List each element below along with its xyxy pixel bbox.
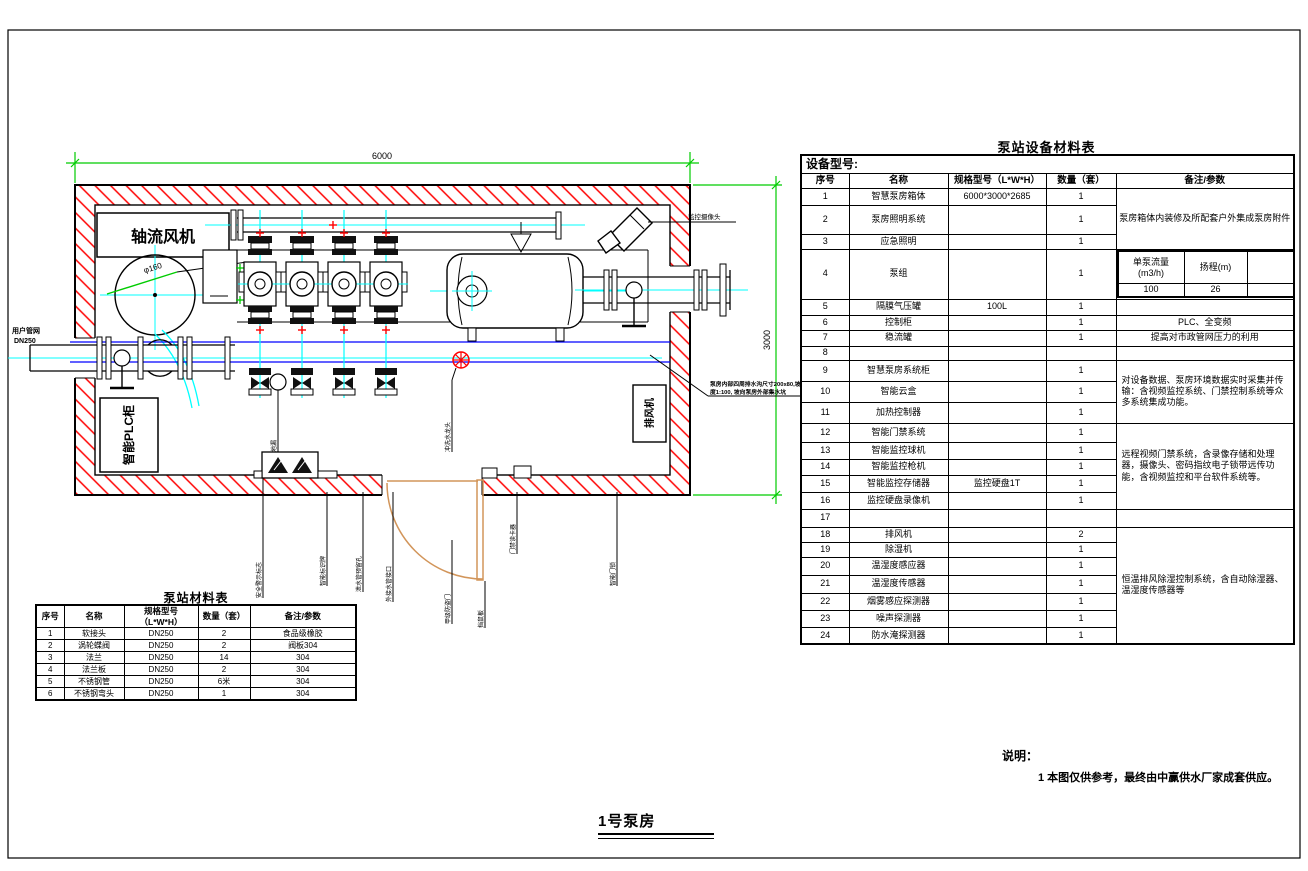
cell-no: 1 bbox=[36, 628, 64, 640]
cell-spec bbox=[948, 492, 1046, 509]
cell-name: 智能监控球机 bbox=[849, 442, 948, 459]
cell-spec bbox=[948, 381, 1046, 402]
cell-qty: 1 bbox=[1046, 402, 1116, 423]
cell-qty: 1 bbox=[1046, 360, 1116, 381]
cell-spec: 100L bbox=[948, 299, 1046, 315]
cell-remark: 恒温排风除湿控制系统，含自动除湿器、温湿度传感器等 bbox=[1116, 527, 1294, 644]
table-row: 17 bbox=[801, 509, 1294, 527]
cell-spec: DN250 bbox=[124, 664, 198, 676]
svg-text:外接水管接口: 外接水管接口 bbox=[385, 566, 393, 602]
cell-remark: 304 bbox=[250, 664, 356, 676]
cell-qty: 1 bbox=[1046, 610, 1116, 627]
cell-name: 泵房照明系统 bbox=[849, 205, 948, 234]
cell-name: 烟雾感应探测器 bbox=[849, 593, 948, 610]
cell-spec bbox=[948, 423, 1046, 442]
cell-spec bbox=[948, 330, 1046, 346]
cell-qty bbox=[1046, 346, 1116, 360]
cell-qty: 2 bbox=[198, 664, 250, 676]
col-header: 备注/参数 bbox=[1116, 173, 1294, 188]
cell-spec bbox=[948, 205, 1046, 234]
cell-spec bbox=[948, 627, 1046, 644]
cell-qty: 1 bbox=[1046, 205, 1116, 234]
svg-text:门禁读卡器: 门禁读卡器 bbox=[509, 524, 517, 554]
table-row: 设备型号: bbox=[801, 155, 1294, 173]
col-header: 备注/参数 bbox=[250, 605, 356, 628]
param-value: 100 bbox=[1118, 284, 1185, 297]
cell-no: 6 bbox=[36, 688, 64, 700]
tap-icon bbox=[452, 352, 469, 452]
cell-spec bbox=[948, 557, 1046, 575]
cell-no: 1 bbox=[801, 188, 849, 205]
cell-name: 智能云盒 bbox=[849, 381, 948, 402]
cell-qty bbox=[1046, 509, 1116, 527]
table-row: 1 智慧泵房箱体 6000*3000*2685 1 泵房箱体内装修及所配套户外集… bbox=[801, 188, 1294, 205]
table-row: 6 控制柜 1 PLC、全变频 bbox=[801, 315, 1294, 330]
cell-qty: 1 bbox=[1046, 627, 1116, 644]
table-row: 4 法兰板 DN250 2 304 bbox=[36, 664, 356, 676]
cell-no: 21 bbox=[801, 575, 849, 593]
col-header: 规格型号（L*W*H） bbox=[948, 173, 1046, 188]
table-row: 5 不锈钢管 DN250 6米 304 bbox=[36, 676, 356, 688]
cell-no: 7 bbox=[801, 330, 849, 346]
cell-name: 控制柜 bbox=[849, 315, 948, 330]
cell-spec bbox=[948, 527, 1046, 542]
cell-spec: DN250 bbox=[124, 628, 198, 640]
table-row: 12 智能门禁系统 1 远程视频门禁系统，含录像存储和处理器，摄像头、密码指纹电… bbox=[801, 423, 1294, 442]
camera-label: 监控摄像头 bbox=[688, 212, 721, 221]
cell-no: 19 bbox=[801, 542, 849, 557]
cell-qty: 1 bbox=[1046, 423, 1116, 442]
cell-remark: 提高对市政管网压力的利用 bbox=[1116, 330, 1294, 346]
cell-spec bbox=[948, 509, 1046, 527]
duct-diameter-label: φ160 bbox=[143, 261, 164, 275]
cell-spec bbox=[948, 234, 1046, 249]
cell-spec bbox=[948, 315, 1046, 330]
cell-qty: 1 bbox=[1046, 475, 1116, 492]
cell-remark: 远程视频门禁系统，含录像存储和处理器，摄像头、密码指纹电子锁带远传功能，含视频监… bbox=[1116, 423, 1294, 509]
svg-text:泄水管预留孔: 泄水管预留孔 bbox=[355, 556, 363, 592]
cell-remark bbox=[1116, 299, 1294, 315]
cell-no: 4 bbox=[801, 249, 849, 299]
param-value: 15 bbox=[1247, 284, 1294, 297]
cell-qty: 1 bbox=[1046, 459, 1116, 475]
cell-spec bbox=[948, 542, 1046, 557]
title-underline bbox=[598, 833, 714, 839]
cell-spec bbox=[948, 442, 1046, 459]
cell-name: 智慧泵房系统柜 bbox=[849, 360, 948, 381]
pump-params-cell: 单泵流量(m3/h) 扬程(m) 功率（kw） 100 26 15 bbox=[1116, 249, 1294, 299]
cell-spec: DN250 bbox=[124, 652, 198, 664]
drawing-title-block: 1号泵房 bbox=[598, 810, 714, 839]
col-header: 序号 bbox=[801, 173, 849, 188]
param-header: 扬程(m) bbox=[1184, 251, 1247, 284]
cell-no: 23 bbox=[801, 610, 849, 627]
table-row: 18 排风机 2 恒温排风除湿控制系统，含自动除湿器、温湿度传感器等 bbox=[801, 527, 1294, 542]
table-row: 2 涡轮蝶阀 DN250 2 阀板304 bbox=[36, 640, 356, 652]
cell-no: 11 bbox=[801, 402, 849, 423]
cell-no: 6 bbox=[801, 315, 849, 330]
material-table-section: 泵站材料表 序号 名称 规格型号（L*W*H） 数量（套） 备注/参数 1 软接… bbox=[35, 589, 357, 701]
cell-name bbox=[849, 346, 948, 360]
cell-name: 噪声探测器 bbox=[849, 610, 948, 627]
material-table-title: 泵站材料表 bbox=[35, 589, 357, 604]
cell-name: 软接头 bbox=[64, 628, 124, 640]
cell-qty: 1 bbox=[1046, 575, 1116, 593]
table-row: 6 不锈钢弯头 DN250 1 304 bbox=[36, 688, 356, 700]
param-header: 功率（kw） bbox=[1247, 251, 1294, 284]
equipment-table-section: 泵站设备材料表 设备型号: 序号 名称 规格型号（L*W*H） 数量（套） 备注… bbox=[800, 137, 1293, 645]
user-pipe-label: 用户管网 bbox=[12, 326, 40, 335]
cell-no: 2 bbox=[801, 205, 849, 234]
table-row: 3 法兰 DN250 14 304 bbox=[36, 652, 356, 664]
cell-name: 监控硬盘录像机 bbox=[849, 492, 948, 509]
floor-drain-label: 地漏 bbox=[270, 440, 278, 452]
param-header: 单泵流量(m3/h) bbox=[1118, 251, 1185, 284]
cell-no: 13 bbox=[801, 442, 849, 459]
param-value: 26 bbox=[1184, 284, 1247, 297]
cell-spec: 监控硬盘1T bbox=[948, 475, 1046, 492]
cell-no: 4 bbox=[36, 664, 64, 676]
cell-name: 涡轮蝶阀 bbox=[64, 640, 124, 652]
cell-name: 法兰 bbox=[64, 652, 124, 664]
cell-no: 16 bbox=[801, 492, 849, 509]
cell-name: 泵组 bbox=[849, 249, 948, 299]
cell-qty: 1 bbox=[1046, 188, 1116, 205]
pump-params-table: 单泵流量(m3/h) 扬程(m) 功率（kw） 100 26 15 bbox=[1117, 250, 1295, 297]
cell-qty: 14 bbox=[198, 652, 250, 664]
cell-remark: PLC、全变频 bbox=[1116, 315, 1294, 330]
cell-remark bbox=[1116, 346, 1294, 360]
table-row: 7 稳流罐 1 提高对市政管网压力的利用 bbox=[801, 330, 1294, 346]
cell-qty: 2 bbox=[1046, 527, 1116, 542]
cell-spec bbox=[948, 402, 1046, 423]
cell-no: 8 bbox=[801, 346, 849, 360]
cell-qty: 1 bbox=[1046, 234, 1116, 249]
table-row: 100 26 15 bbox=[1118, 284, 1295, 297]
cell-qty: 1 bbox=[1046, 593, 1116, 610]
cell-no: 3 bbox=[801, 234, 849, 249]
cell-name: 智能监控存储器 bbox=[849, 475, 948, 492]
cell-remark: 阀板304 bbox=[250, 640, 356, 652]
cell-name: 温湿度传感器 bbox=[849, 575, 948, 593]
cell-qty: 2 bbox=[198, 628, 250, 640]
cell-no: 12 bbox=[801, 423, 849, 442]
cell-name: 防水淹探测器 bbox=[849, 627, 948, 644]
cell-name: 除湿机 bbox=[849, 542, 948, 557]
cell-qty: 1 bbox=[1046, 442, 1116, 459]
table-row: 9 智慧泵房系统柜 1 对设备数据、泵房环境数据实时采集并传输：含视频监控系统、… bbox=[801, 360, 1294, 381]
cell-qty: 1 bbox=[1046, 542, 1116, 557]
cell-remark: 304 bbox=[250, 652, 356, 664]
cell-qty: 6米 bbox=[198, 676, 250, 688]
notes-block: 说明： 1 本图仅供参考，最终由中赢供水厂家成套供应。 bbox=[1002, 747, 1278, 785]
svg-text:智能门锁: 智能门锁 bbox=[609, 562, 617, 586]
cell-no: 22 bbox=[801, 593, 849, 610]
discharge-pipe bbox=[575, 264, 748, 326]
cell-remark: 304 bbox=[250, 676, 356, 688]
svg-text:甲级防盗门: 甲级防盗门 bbox=[444, 594, 452, 624]
cell-spec bbox=[948, 346, 1046, 360]
cell-remark: 304 bbox=[250, 688, 356, 700]
cell-no: 9 bbox=[801, 360, 849, 381]
table-row: 5 隔膜气压罐 100L 1 bbox=[801, 299, 1294, 315]
cell-name: 稳流罐 bbox=[849, 330, 948, 346]
col-header: 序号 bbox=[36, 605, 64, 628]
cell-spec bbox=[948, 575, 1046, 593]
door-frame-tab bbox=[482, 468, 497, 478]
cell-name: 隔膜气压罐 bbox=[849, 299, 948, 315]
drawing-title: 1号泵房 bbox=[598, 810, 714, 831]
dim-top-value: 6000 bbox=[372, 151, 392, 161]
cell-name: 智能门禁系统 bbox=[849, 423, 948, 442]
cell-name: 不锈钢管 bbox=[64, 676, 124, 688]
cell-name: 加热控制器 bbox=[849, 402, 948, 423]
col-header: 数量（套） bbox=[198, 605, 250, 628]
cell-no: 18 bbox=[801, 527, 849, 542]
note-item: 1 本图仅供参考，最终由中赢供水厂家成套供应。 bbox=[1038, 769, 1278, 785]
equipment-table: 设备型号: 序号 名称 规格型号（L*W*H） 数量（套） 备注/参数 1 智慧… bbox=[800, 154, 1295, 645]
col-header: 名称 bbox=[849, 173, 948, 188]
cell-no: 20 bbox=[801, 557, 849, 575]
drain-note-line2: 度1:100, 坡向泵房外部集水坑 bbox=[710, 388, 786, 396]
svg-text:智能标识牌: 智能标识牌 bbox=[319, 556, 327, 586]
cell-spec bbox=[948, 360, 1046, 381]
warning-sign bbox=[254, 452, 337, 478]
cell-name: 智能监控枪机 bbox=[849, 459, 948, 475]
cell-no: 3 bbox=[36, 652, 64, 664]
table-header-row: 序号 名称 规格型号（L*W*H） 数量（套） 备注/参数 bbox=[36, 605, 356, 628]
drain-note-line1: 泵房内部四周排水沟尺寸200x80,坡 bbox=[710, 380, 801, 388]
cell-qty: 1 bbox=[1046, 299, 1116, 315]
dim-right-value: 3000 bbox=[762, 330, 772, 350]
table-row: 8 bbox=[801, 346, 1294, 360]
cell-remark: 食品级橡胶 bbox=[250, 628, 356, 640]
cell-qty: 1 bbox=[1046, 557, 1116, 575]
cell-spec bbox=[948, 610, 1046, 627]
cell-name: 智慧泵房箱体 bbox=[849, 188, 948, 205]
cell-qty: 1 bbox=[1046, 315, 1116, 330]
col-header: 规格型号（L*W*H） bbox=[124, 605, 198, 628]
model-label: 设备型号: bbox=[801, 155, 1294, 173]
door-frame-tab bbox=[514, 466, 531, 478]
col-header: 名称 bbox=[64, 605, 124, 628]
cell-spec bbox=[948, 593, 1046, 610]
cell-remark: 泵房箱体内装修及所配套户外集成泵房附件 bbox=[1116, 188, 1294, 249]
cell-remark: 对设备数据、泵房环境数据实时采集并传输：含视频监控系统、门禁控制系统等众多系统集… bbox=[1116, 360, 1294, 423]
table-row: 单泵流量(m3/h) 扬程(m) 功率（kw） bbox=[1118, 251, 1295, 284]
cell-qty: 2 bbox=[198, 640, 250, 652]
exhaust-fan-label: 排风机 bbox=[643, 398, 656, 428]
cell-qty: 1 bbox=[1046, 492, 1116, 509]
cell-no: 5 bbox=[36, 676, 64, 688]
cell-name: 温湿度感应器 bbox=[849, 557, 948, 575]
cell-name: 排风机 bbox=[849, 527, 948, 542]
cell-no: 14 bbox=[801, 459, 849, 475]
cell-no: 10 bbox=[801, 381, 849, 402]
cell-name: 法兰板 bbox=[64, 664, 124, 676]
cell-no: 2 bbox=[36, 640, 64, 652]
cell-no: 5 bbox=[801, 299, 849, 315]
table-header-row: 序号 名称 规格型号（L*W*H） 数量（套） 备注/参数 bbox=[801, 173, 1294, 188]
plc-cabinet-label: 智能PLC柜 bbox=[121, 405, 136, 466]
cell-spec: DN250 bbox=[124, 640, 198, 652]
cell-spec bbox=[948, 459, 1046, 475]
cell-spec: DN250 bbox=[124, 676, 198, 688]
equipment-table-title: 泵站设备材料表 bbox=[800, 137, 1293, 154]
table-row: 4 泵组 1 单泵流量(m3/h) 扬程(m) 功率（kw） 100 26 15 bbox=[801, 249, 1294, 299]
cell-name bbox=[849, 509, 948, 527]
cell-spec bbox=[948, 249, 1046, 299]
cell-name: 应急照明 bbox=[849, 234, 948, 249]
svg-text:挡鼠板: 挡鼠板 bbox=[477, 610, 485, 628]
drawing-sheet: 6000 3000 轴流风机 φ160 bbox=[0, 0, 1308, 871]
notes-heading: 说明： bbox=[1002, 747, 1278, 764]
cell-spec: DN250 bbox=[124, 688, 198, 700]
cell-name: 不锈钢弯头 bbox=[64, 688, 124, 700]
table-row: 1 软接头 DN250 2 食品级橡胶 bbox=[36, 628, 356, 640]
cell-no: 17 bbox=[801, 509, 849, 527]
user-pipe-dn: DN250 bbox=[14, 338, 36, 345]
cell-spec: 6000*3000*2685 bbox=[948, 188, 1046, 205]
cell-no: 24 bbox=[801, 627, 849, 644]
fan-label: 轴流风机 bbox=[131, 227, 195, 246]
material-table: 序号 名称 规格型号（L*W*H） 数量（套） 备注/参数 1 软接头 DN25… bbox=[35, 604, 357, 701]
cell-qty: 1 bbox=[1046, 249, 1116, 299]
cell-remark bbox=[1116, 509, 1294, 527]
cell-no: 15 bbox=[801, 475, 849, 492]
cell-qty: 1 bbox=[198, 688, 250, 700]
cell-qty: 1 bbox=[1046, 330, 1116, 346]
tap-label: 冲洗水龙头 bbox=[444, 422, 452, 452]
col-header: 数量（套） bbox=[1046, 173, 1116, 188]
cell-qty: 1 bbox=[1046, 381, 1116, 402]
pump-group bbox=[238, 210, 408, 398]
